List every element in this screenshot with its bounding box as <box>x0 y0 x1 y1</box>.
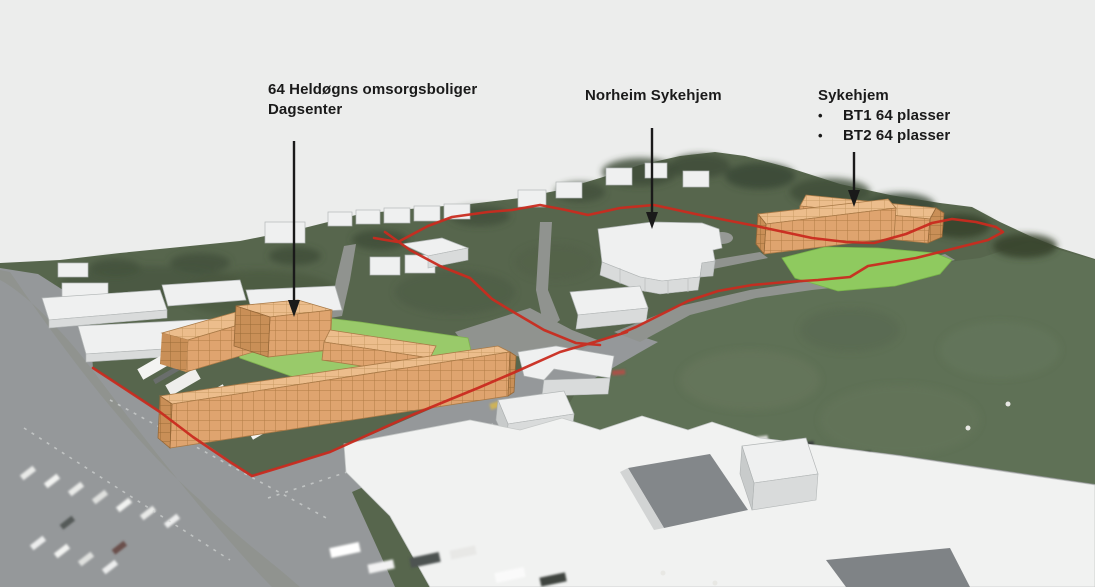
annotation-sykehjem: Sykehjem • BT1 64 plasser • BT2 64 plass… <box>818 86 950 146</box>
existing-building <box>683 171 709 187</box>
annotation-omsorgsboliger-line1: 64 Heldøgns omsorgsboliger <box>268 80 477 100</box>
annotation-omsorgsboliger: 64 Heldøgns omsorgsboliger Dagsenter <box>268 80 477 120</box>
existing-building <box>556 182 582 198</box>
existing-building <box>265 222 305 243</box>
existing-building <box>328 212 352 226</box>
existing-building <box>58 263 88 277</box>
annotation-sykehjem-item-2-text: BT2 64 plasser <box>843 126 950 146</box>
annotation-sykehjem-item-1: • BT1 64 plasser <box>818 106 950 126</box>
annotation-norheim: Norheim Sykehjem <box>585 86 722 106</box>
existing-building <box>606 168 632 185</box>
back-block <box>234 300 332 357</box>
bullet-icon: • <box>818 126 843 146</box>
white-massing-box-d <box>740 438 818 510</box>
existing-building <box>356 210 380 224</box>
existing-building <box>645 163 667 178</box>
existing-building <box>370 257 400 275</box>
annotation-sykehjem-title: Sykehjem <box>818 86 950 106</box>
bullet-icon: • <box>818 106 843 126</box>
existing-building <box>414 206 440 221</box>
existing-building <box>384 208 410 223</box>
annotation-sykehjem-item-2: • BT2 64 plasser <box>818 126 950 146</box>
annotation-sykehjem-item-1-text: BT1 64 plasser <box>843 106 950 126</box>
annotation-omsorgsboliger-line2: Dagsenter <box>268 100 477 120</box>
site-plan-scene: 64 Heldøgns omsorgsboliger Dagsenter Nor… <box>0 0 1095 587</box>
